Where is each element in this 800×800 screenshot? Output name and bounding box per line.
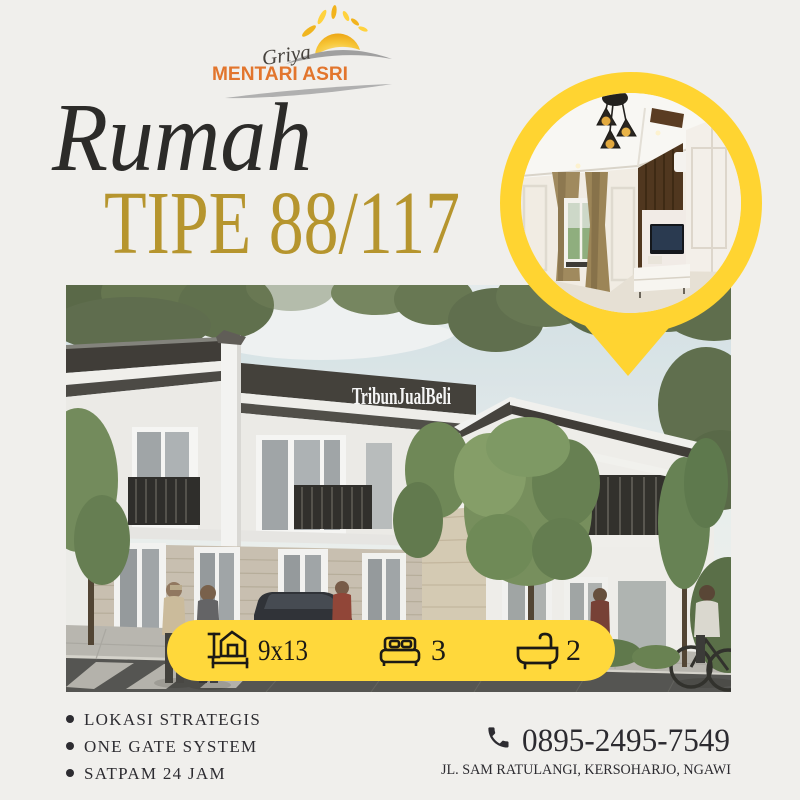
svg-text:TIPE 88/117: TIPE 88/117: [104, 174, 460, 273]
svg-text:9x13: 9x13: [258, 634, 308, 667]
svg-text:MENTARI ASRI: MENTARI ASRI: [212, 64, 348, 85]
svg-text:ONE GATE SYSTEM: ONE GATE SYSTEM: [84, 737, 257, 756]
svg-text:JL. SAM RATULANGI, KERSOHARJO,: JL. SAM RATULANGI, KERSOHARJO, NGAWI: [441, 762, 731, 778]
svg-text:TribunJualBeli: TribunJualBeli: [352, 384, 451, 410]
svg-text:3: 3: [431, 634, 446, 667]
svg-text:2: 2: [566, 634, 581, 667]
svg-text:LOKASI STRATEGIS: LOKASI STRATEGIS: [84, 710, 261, 729]
svg-text:0895-2495-7549: 0895-2495-7549: [522, 723, 730, 759]
svg-text:SATPAM 24 JAM: SATPAM 24 JAM: [84, 764, 226, 783]
